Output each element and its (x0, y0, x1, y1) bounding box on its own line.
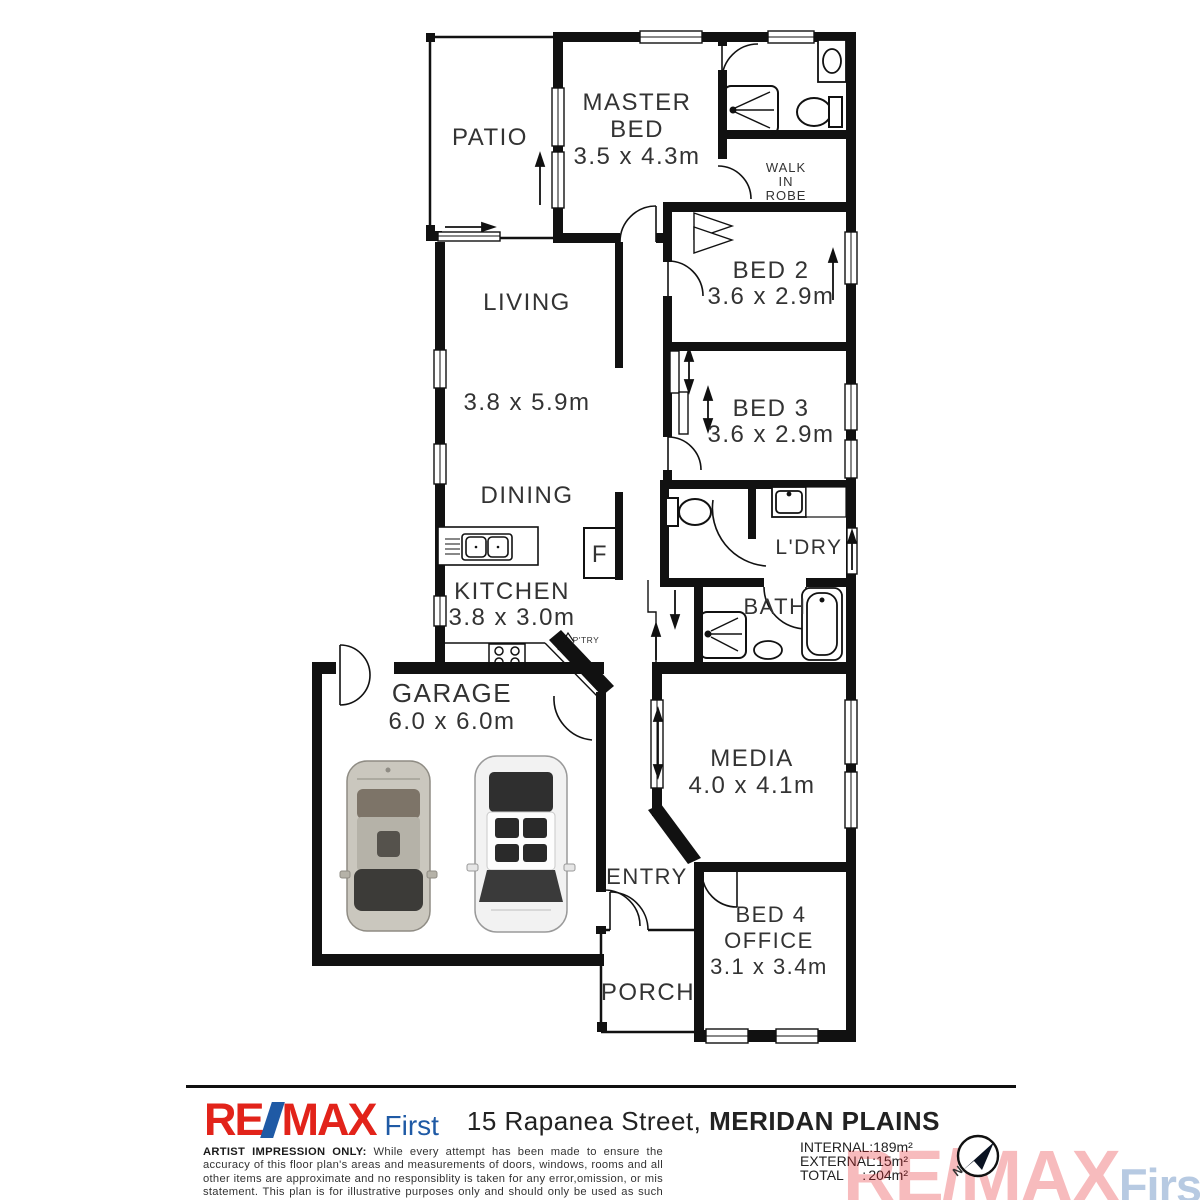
label-dining: DINING (481, 482, 574, 509)
remax-first-logo: REMAXFirst (204, 1094, 439, 1146)
address-street: 15 Rapanea Street, (467, 1106, 709, 1136)
label-bed3: BED 3 (733, 395, 810, 422)
disclaimer-lead: ARTIST IMPRESSION ONLY: (203, 1146, 367, 1158)
wc-toilet (666, 498, 711, 526)
label-wir-1: WALK (766, 160, 806, 175)
label-garage-dims: 6.0 x 6.0m (388, 708, 515, 735)
footer-divider (186, 1085, 1016, 1088)
laundry-tub (772, 487, 846, 517)
remax-watermark: RE/MAXFirst (843, 1134, 1200, 1200)
ensuite-shower (724, 86, 778, 134)
kitchen-island (438, 527, 538, 565)
label-ldry: L'DRY (775, 536, 842, 559)
label-patio: PATIO (452, 124, 528, 151)
logo-max-text: MAX (282, 1094, 376, 1145)
label-entry: ENTRY (606, 864, 688, 889)
label-fridge: F (592, 541, 608, 568)
watermark-first: First (1119, 1159, 1200, 1200)
label-master-1: MASTER (582, 89, 691, 116)
label-wir-2: IN (779, 174, 794, 189)
label-porch: PORCH (601, 979, 695, 1006)
bathtub (802, 588, 842, 660)
label-garage: GARAGE (392, 678, 512, 708)
car-sedan-white (467, 756, 575, 932)
address-suburb: MERIDAN PLAINS (709, 1106, 940, 1136)
logo-first-text: First (385, 1110, 439, 1141)
patio-corner-post (426, 33, 435, 42)
linen-nook-line (648, 580, 656, 662)
label-media-dims: 4.0 x 4.1m (688, 772, 815, 799)
label-bed3-dims: 3.6 x 2.9m (707, 421, 834, 448)
label-bath: BATH (743, 594, 806, 619)
label-kitchen-dims: 3.8 x 3.0m (448, 604, 575, 631)
label-bed4-1: BED 4 (735, 902, 806, 927)
label-media: MEDIA (710, 745, 794, 772)
label-wir-3: ROBE (766, 188, 807, 203)
bed3-robe-doors (670, 351, 688, 434)
label-pantry: P'TRY (573, 635, 600, 645)
logo-re-text: RE (204, 1094, 263, 1145)
label-living-dims: 3.8 x 5.9m (463, 389, 590, 416)
floor-plan-page: PATIO MASTER BED 3.5 x 4.3m WALK IN ROBE… (0, 0, 1200, 1200)
label-master-2: BED (610, 116, 664, 143)
north-compass-icon: N (948, 1130, 1006, 1192)
car-sedan-champagne (340, 761, 437, 931)
floor-plan-drawing: PATIO MASTER BED 3.5 x 4.3m WALK IN ROBE… (0, 0, 1200, 1085)
label-master-dims: 3.5 x 4.3m (573, 143, 700, 170)
disclaimer-text: ARTIST IMPRESSION ONLY: While every atte… (203, 1146, 663, 1200)
bath-shower (700, 612, 746, 658)
label-bed2: BED 2 (733, 257, 810, 284)
label-bed4-dims: 3.1 x 3.4m (710, 954, 828, 979)
label-kitchen: KITCHEN (454, 578, 570, 605)
ensuite-toilet (797, 97, 842, 127)
property-address: 15 Rapanea Street, MERIDAN PLAINS (467, 1106, 940, 1137)
ensuite-basin (818, 40, 846, 82)
label-living: LIVING (483, 289, 571, 316)
bath-basin (754, 641, 782, 659)
label-bed2-dims: 3.6 x 2.9m (707, 283, 834, 310)
label-bed4-2: OFFICE (724, 928, 814, 953)
bed2-robe-doors (694, 213, 732, 253)
porch-corner-post (597, 1022, 607, 1032)
